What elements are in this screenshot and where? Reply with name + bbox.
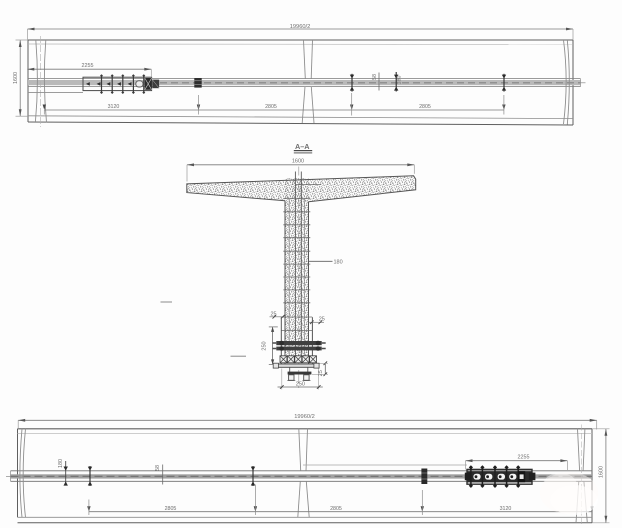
svg-text:2255: 2255 <box>518 454 530 460</box>
svg-text:25: 25 <box>270 311 276 317</box>
svg-text:180: 180 <box>397 76 403 85</box>
svg-text:1600: 1600 <box>599 466 605 478</box>
svg-text:2255: 2255 <box>82 63 94 69</box>
svg-text:2805: 2805 <box>265 104 277 110</box>
svg-text:25: 25 <box>319 317 325 323</box>
svg-text:A–A: A–A <box>295 142 310 151</box>
svg-text:250: 250 <box>261 341 267 350</box>
svg-text:19960/2: 19960/2 <box>290 24 311 30</box>
svg-text:3120: 3120 <box>500 506 512 512</box>
svg-text:3120: 3120 <box>108 104 120 110</box>
svg-text:180: 180 <box>58 459 64 468</box>
svg-text:19960/2: 19960/2 <box>294 414 315 420</box>
svg-text:58: 58 <box>155 465 161 471</box>
svg-text:1600: 1600 <box>13 72 19 84</box>
svg-text:2805: 2805 <box>330 506 342 512</box>
svg-text:250: 250 <box>296 381 305 387</box>
svg-text:58: 58 <box>372 74 378 80</box>
svg-text:180: 180 <box>334 260 343 266</box>
svg-text:1600: 1600 <box>292 158 304 164</box>
svg-text:2805: 2805 <box>419 104 431 110</box>
svg-text:2805: 2805 <box>165 506 177 512</box>
